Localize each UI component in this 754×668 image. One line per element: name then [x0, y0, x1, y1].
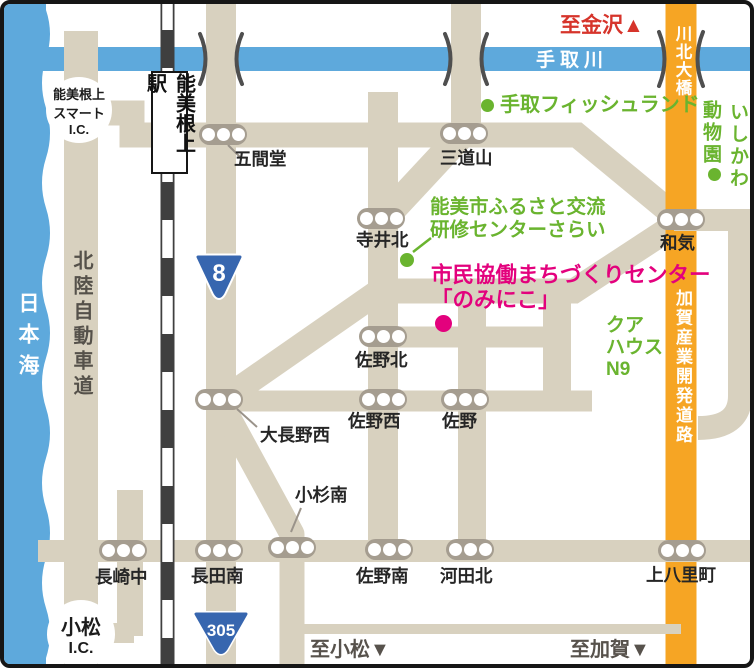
poi-kurhaus-line2: ハウス — [606, 337, 663, 359]
intersection-label: 上八里町 — [646, 566, 716, 585]
poi-sarai-line2: 研修センターさらい — [430, 219, 606, 242]
ic-label: スマート — [53, 103, 105, 122]
traffic-signal-icon — [440, 123, 488, 144]
destination-dot — [435, 315, 452, 332]
intersection-label: 長田南 — [191, 567, 244, 586]
direction-kaga: 至加賀▼ — [570, 639, 650, 661]
intersection-label: 長崎中 — [95, 568, 148, 587]
traffic-signal-icon — [99, 540, 147, 561]
traffic-signal-icon — [359, 389, 407, 410]
komatsu-ic: 小松 I.C. — [47, 600, 115, 668]
intersection-label: 和気 — [660, 234, 695, 253]
traffic-signal-icon — [359, 326, 407, 347]
road-onagano-diagonal — [220, 292, 378, 402]
intersection-label: 佐野北 — [355, 351, 408, 370]
ic-label: 小松 — [61, 611, 101, 640]
traffic-signal-icon — [365, 539, 413, 560]
sea-of-japan-label: 日本海 — [12, 292, 42, 385]
poi-kurhaus-label: クア ハウス N9 — [606, 315, 663, 381]
traffic-signal-icon — [199, 124, 247, 145]
route-8-shield-icon: 8 — [189, 250, 249, 302]
intersection-label: 小杉南 — [295, 486, 348, 505]
direction-komatsu: 至小松▼ — [310, 639, 390, 661]
pointer-line-sarai — [413, 238, 431, 252]
poi-kurhaus-line1: クア — [606, 315, 663, 337]
intersection-label: 佐野西 — [348, 412, 401, 431]
intersection-label: 大長野西 — [260, 426, 330, 445]
ic-label: I.C. — [69, 640, 94, 658]
station-box: 能美根上駅 — [151, 71, 188, 174]
traffic-signal-icon — [657, 209, 705, 230]
poi-sarai-label: 能美市ふるさと交流 研修センターさらい — [430, 196, 606, 242]
station-name: 能美根上駅 — [141, 73, 199, 172]
kawakita-bridge-label: 川北大橋 — [670, 25, 694, 97]
poi-sarai-line1: 能美市ふるさと交流 — [430, 196, 606, 219]
traffic-signal-icon — [357, 208, 405, 229]
direction-kanazawa: 至金沢▲ — [560, 14, 644, 37]
ic-label: 能美根上 — [53, 84, 105, 103]
traffic-signal-icon — [195, 389, 243, 410]
intersection-label: 五間堂 — [234, 150, 287, 169]
poi-dot-sarai — [400, 253, 414, 267]
poi-dot-zoo — [708, 168, 721, 181]
intersection-label: 三道山 — [440, 149, 493, 168]
destination-label: 市民協働まちづくりセンター 「のみにこ」 — [431, 263, 711, 313]
tedori-river-label: 手取川 — [536, 51, 608, 72]
poi-zoo-label-left: 動物園 — [697, 100, 724, 166]
traffic-signal-icon — [195, 540, 243, 561]
intersection-label: 佐野 — [442, 412, 477, 431]
route-number: 305 — [207, 621, 235, 640]
route-305-shield-icon: 305 — [188, 608, 254, 658]
intersection-label: 佐野南 — [356, 567, 409, 586]
route-number: 8 — [212, 260, 225, 287]
road-east-hook — [698, 220, 740, 428]
poi-dot-fishland — [481, 99, 494, 112]
destination-line1: 市民協働まちづくりセンター — [431, 263, 711, 288]
ic-label: I.C. — [69, 122, 89, 137]
poi-fishland-label: 手取フィッシュランド — [500, 94, 700, 116]
intersection-label: 河田北 — [440, 567, 493, 586]
traffic-signal-icon — [268, 537, 316, 558]
destination-line2: 「のみにこ」 — [431, 288, 711, 313]
traffic-signal-icon — [441, 389, 489, 410]
poi-kurhaus-line3: N9 — [606, 359, 663, 381]
tedori-river-band — [38, 47, 754, 71]
traffic-signal-icon — [658, 540, 706, 561]
access-map: 能美根上駅 能美根上 スマート I.C. 小松 I.C. 8 305 日本海 北… — [0, 0, 754, 668]
poi-zoo-label-right: いしかわ — [724, 102, 751, 190]
nomi-negami-smart-ic: 能美根上 スマート I.C. — [46, 77, 112, 143]
traffic-signal-icon — [446, 539, 494, 560]
intersection-label: 寺井北 — [356, 231, 409, 250]
hokuriku-expressway-label: 北陸自動車道 — [67, 250, 96, 400]
